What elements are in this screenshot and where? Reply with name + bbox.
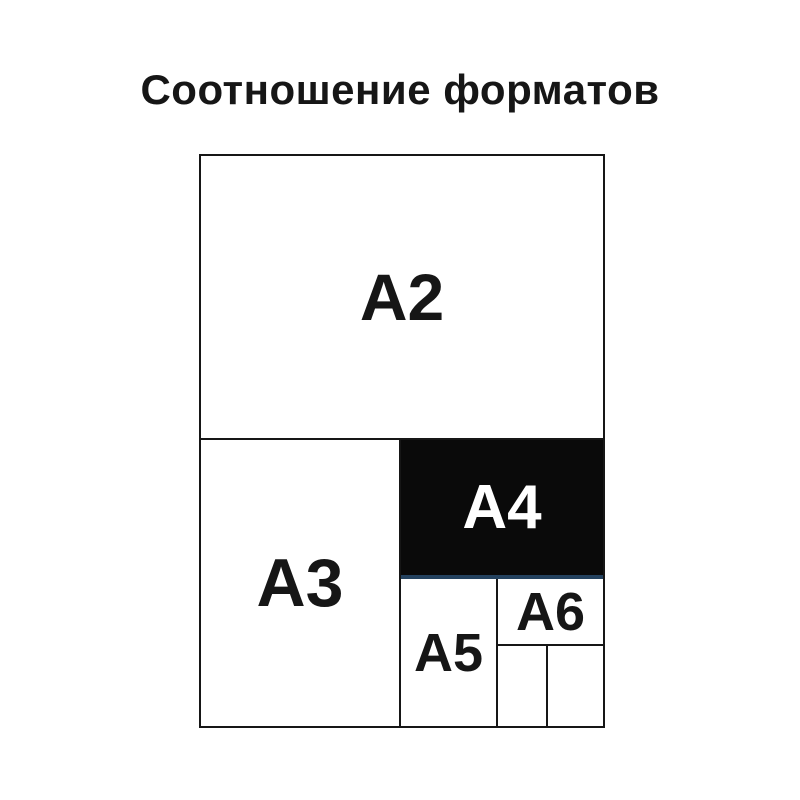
diagram-small-cells-row — [498, 646, 603, 726]
format-label-a6: A6 — [516, 585, 585, 639]
format-box-a6: A6 — [498, 579, 603, 646]
diagram-right-column: A4 A5 A6 — [401, 440, 603, 726]
format-label-a2: A2 — [360, 264, 444, 330]
small-cell-right — [548, 646, 603, 726]
format-label-a5: A5 — [414, 626, 483, 680]
diagram-bottom-row: A3 A4 A5 A6 — [201, 440, 603, 726]
page-title: Соотношение форматов — [0, 64, 800, 116]
format-comparison-diagram: A2 A3 A4 A5 A6 — [199, 154, 605, 728]
format-box-a2: A2 — [201, 156, 603, 440]
format-box-a3: A3 — [201, 440, 401, 726]
format-label-a4: A4 — [462, 477, 541, 539]
small-cell-left — [498, 646, 548, 726]
format-box-a4: A4 — [401, 440, 603, 579]
format-label-a3: A3 — [257, 549, 344, 617]
diagram-sub-row: A5 A6 — [401, 579, 603, 726]
format-box-a5: A5 — [401, 579, 498, 726]
diagram-a6-column: A6 — [498, 579, 603, 726]
